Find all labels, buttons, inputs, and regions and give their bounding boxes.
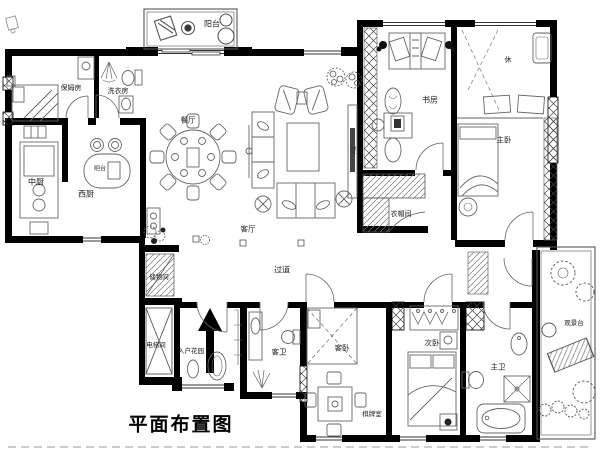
dining-table	[150, 114, 236, 200]
study-furniture	[364, 28, 456, 170]
page-title: 平面布置图	[128, 410, 233, 437]
window-columns	[3, 77, 558, 402]
plant-icons	[144, 68, 362, 246]
bar-counter-furniture	[84, 139, 160, 235]
chinese-kitchen-furniture	[20, 126, 58, 234]
guest-bath-furniture	[249, 302, 300, 388]
laundry-furniture	[96, 62, 142, 118]
nanny-room-furniture	[7, 57, 94, 121]
misc-icon	[6, 16, 19, 33]
cloakroom-furniture	[363, 174, 425, 232]
balcony-area	[144, 9, 237, 49]
floor-plan-drawing	[0, 0, 600, 450]
second-bedroom-furniture	[408, 274, 458, 430]
guest-bedroom-furniture	[305, 274, 366, 436]
storage-elevator	[146, 254, 174, 374]
walls	[5, 20, 557, 442]
terrace-items	[537, 247, 595, 439]
entry-garden-items	[188, 302, 243, 380]
living-room-furniture	[246, 85, 357, 218]
master-bedroom-furniture	[457, 30, 557, 294]
floor-plan: 阳台 保姆房 洗衣房 中厨 西厨 吧台 餐厅 客厅 TV 书房 衣帽间 休 主卧…	[0, 0, 600, 450]
